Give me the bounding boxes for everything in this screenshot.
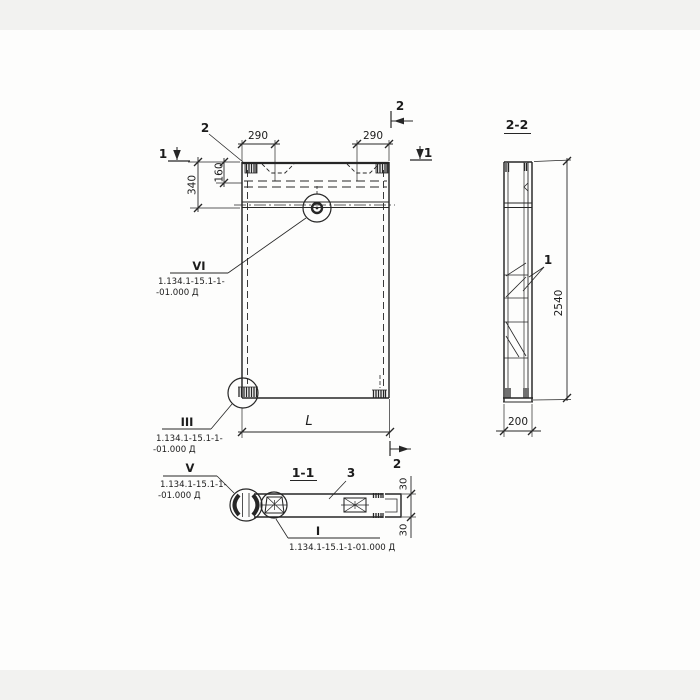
front-view: 290 290 340 160: [153, 99, 432, 471]
cut-mark-2-top: 2: [391, 99, 413, 128]
section-2-2-bottom-feet: [506, 388, 528, 398]
dim-290-left-value: 290: [248, 130, 268, 142]
callout-1-rib-label: 1: [544, 253, 552, 267]
section-2-2-title-text: 2-2: [506, 117, 529, 132]
bottom-embed-right: [372, 375, 387, 398]
detail-circle-iii: [228, 378, 258, 408]
detail-ref-vi-doc1: 1.134.1-15.1-1-: [158, 277, 225, 287]
scan-band-bottom: [0, 670, 700, 700]
dim-340-value: 340: [187, 175, 199, 195]
callout-2-embed-label: 2: [201, 121, 209, 135]
section-1-1: 1-1 3: [158, 461, 416, 553]
top-recess-left: [262, 164, 294, 173]
top-recess-right: [347, 164, 379, 173]
dim-290-right-value: 290: [363, 130, 383, 142]
end-embeds: [374, 493, 384, 518]
callout-2-embed: 2: [201, 121, 243, 162]
dim-30-bottom-value: 30: [399, 524, 410, 537]
detail-circle-channel: [230, 489, 262, 521]
top-embed-left: [245, 163, 257, 173]
detail-ref-i-doc: 1.134.1-15.1-1-01.000 Д: [289, 543, 396, 553]
dim-160: 160: [214, 158, 243, 187]
detail-ref-iii-doc1: 1.134.1-15.1-1-: [156, 434, 223, 444]
dim-30-top-value: 30: [399, 478, 410, 491]
cut-mark-2-bottom: 2: [390, 441, 411, 471]
detail-ref-vi-label: VI: [192, 259, 205, 273]
callout-1-rib: 1: [523, 253, 552, 291]
detail-ref-v-doc1: 1.134.1-15.1-1-: [160, 480, 227, 490]
cut-mark-1-left-label: 1: [159, 147, 167, 161]
technical-drawing: 290 290 340 160: [0, 0, 700, 700]
detail-ref-i: I 1.134.1-15.1-1-01.000 Д: [276, 519, 396, 553]
dim-200: 200: [496, 404, 541, 437]
detail-ref-iii: III 1.134.1-15.1-1- -01.000 Д: [153, 404, 232, 455]
cut-mark-1-left: 1: [159, 147, 190, 161]
cut-mark-1-right: 1: [410, 146, 432, 160]
scan-band-top: [0, 0, 700, 30]
section-1-1-title: 1-1: [290, 465, 317, 481]
hidden-lines: [244, 181, 387, 187]
section-1-1-title-text: 1-1: [292, 465, 315, 480]
detail-ref-v-label: V: [186, 461, 195, 475]
end-channel: [385, 494, 401, 517]
detail-ref-iii-doc2: -01.000 Д: [153, 445, 196, 455]
opening-symbol: [341, 498, 369, 512]
drawing-sheet: 290 290 340 160: [0, 0, 700, 700]
detail-ref-vi-doc2: -01.000 Д: [156, 288, 199, 298]
cut-mark-2-top-label: 2: [396, 99, 404, 113]
section-2-2-title: 2-2: [504, 117, 531, 134]
detail-ref-iii-label: III: [181, 415, 194, 429]
detail-ref-vi: VI 1.134.1-15.1-1- -01.000 Д: [156, 218, 306, 298]
detail-circle-vi: [303, 186, 331, 222]
dim-length-value: L: [305, 414, 312, 429]
panel-outline: [242, 162, 389, 398]
dim-200-value: 200: [508, 416, 528, 428]
cut-mark-2-bottom-label: 2: [393, 457, 401, 471]
dim-2540: 2540: [533, 157, 571, 402]
cut-mark-1-right-label: 1: [424, 146, 432, 160]
callout-3-slab-label: 3: [347, 466, 355, 480]
detail-ref-v: V 1.134.1-15.1-1- -01.000 Д: [158, 461, 234, 501]
dim-2540-value: 2540: [553, 290, 565, 317]
top-embed-right: [376, 163, 388, 173]
dim-160-value: 160: [214, 162, 226, 182]
dim-length: L: [238, 399, 394, 438]
section-2-2: 2-2: [496, 117, 571, 437]
detail-ref-v-doc2: -01.000 Д: [158, 491, 201, 501]
detail-ref-i-label: I: [316, 524, 320, 538]
section-2-2-outline: [503, 162, 533, 402]
detail-circle-anchor: [261, 492, 287, 518]
